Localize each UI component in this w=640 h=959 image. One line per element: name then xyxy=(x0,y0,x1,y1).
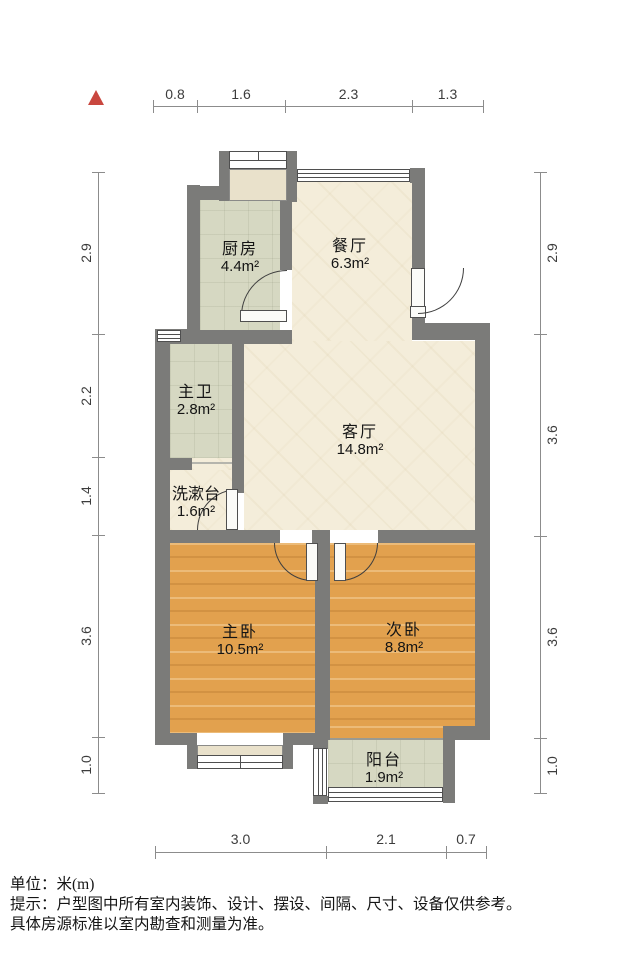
dim-tick xyxy=(534,334,547,335)
room-name: 阳台 xyxy=(365,752,403,769)
kitchen-bay-sill xyxy=(229,169,287,201)
dim-line-right xyxy=(540,172,541,793)
dim-label: 2.3 xyxy=(285,86,412,102)
dim-label: 1.3 xyxy=(412,86,483,102)
dim-tick xyxy=(534,172,547,173)
wall-bay2-right-stub xyxy=(283,745,293,769)
dim-label: 0.7 xyxy=(446,831,486,847)
wall-balcony-right xyxy=(443,740,455,803)
dim-label: 2.2 xyxy=(78,376,94,416)
dim-tick xyxy=(92,793,105,794)
disclaimer-line2: 具体房源标准以室内勘查和测量为准。 xyxy=(10,915,630,935)
room-label-master-bedroom: 主卧 10.5m² xyxy=(217,624,264,659)
room-label-washstand: 洗漱台 1.6m² xyxy=(172,486,220,521)
wall-bay2-left-stub xyxy=(187,745,197,769)
dim-label: 0.8 xyxy=(153,86,197,102)
kitchen-bay-window xyxy=(229,151,287,169)
kitchen-door-leaf xyxy=(240,310,287,322)
wall-kitchen-left xyxy=(187,185,200,332)
dim-label: 1.4 xyxy=(78,476,94,516)
dim-line-top xyxy=(153,106,483,107)
room-area: 1.6m² xyxy=(172,503,220,521)
footer-notes: 单位：米(m) 提示：户型图中所有室内装饰、设计、摆设、间隔、尺寸、设备仅供参考… xyxy=(10,875,630,935)
wall-kitchen-bottom xyxy=(170,330,292,344)
room-area: 2.8m² xyxy=(177,401,215,419)
master-bedroom-door-leaf xyxy=(306,543,318,581)
wall-left-main xyxy=(155,343,170,745)
room-label-dining: 餐厅 6.3m² xyxy=(331,238,369,273)
floor-plan: 厨房 4.4m² 餐厅 6.3m² 主卫 2.8m² 客厅 14.8m² 洗漱台… xyxy=(0,0,640,959)
entry-door-arc xyxy=(418,268,464,314)
disclaimer-line1: 提示：户型图中所有室内装饰、设计、摆设、间隔、尺寸、设备仅供参考。 xyxy=(10,895,630,915)
room-name: 洗漱台 xyxy=(172,486,220,503)
room-label-master-bath: 主卫 2.8m² xyxy=(177,384,215,419)
dining-window xyxy=(297,169,410,182)
bath-opening-line xyxy=(192,462,232,464)
dim-line-bottom xyxy=(155,852,486,853)
room-name: 厨房 xyxy=(221,241,259,258)
balcony-threshold-line xyxy=(330,738,443,740)
unit-note: 单位：米(m) xyxy=(10,875,630,895)
dim-tick xyxy=(486,846,487,859)
room-name: 次卧 xyxy=(385,622,423,639)
wall-right-upper xyxy=(412,168,425,269)
dim-tick xyxy=(534,536,547,537)
dim-tick xyxy=(92,334,105,335)
north-indicator-icon xyxy=(88,90,104,105)
room-name: 客厅 xyxy=(337,424,384,441)
wall-right-step xyxy=(412,323,490,340)
room-label-living: 客厅 14.8m² xyxy=(337,424,384,459)
room-area: 4.4m² xyxy=(221,258,259,276)
dim-label: 2.9 xyxy=(78,233,94,273)
balcony-bottom-window xyxy=(328,787,443,802)
room-area: 10.5m² xyxy=(217,641,264,659)
dim-label: 2.9 xyxy=(544,233,560,273)
dim-tick xyxy=(446,846,447,859)
wall-bedrooms-top-center xyxy=(312,530,330,543)
room-label-kitchen: 厨房 4.4m² xyxy=(221,241,259,276)
dim-label: 3.6 xyxy=(544,415,560,455)
room-name: 主卧 xyxy=(217,624,264,641)
bath-passage-floor xyxy=(192,458,232,470)
dim-tick xyxy=(92,737,105,738)
balcony-left-window xyxy=(313,748,327,796)
dim-tick xyxy=(92,457,105,458)
master-bay-window xyxy=(197,755,283,769)
room-area: 14.8m² xyxy=(337,441,384,459)
dim-label: 2.1 xyxy=(326,831,446,847)
wall-right-main xyxy=(475,340,490,740)
room-name: 主卫 xyxy=(177,384,215,401)
second-bedroom-door-leaf xyxy=(334,543,346,581)
bath-small-window xyxy=(157,330,181,342)
dim-label: 3.0 xyxy=(155,831,326,847)
washstand-door-leaf xyxy=(226,489,238,530)
dim-tick xyxy=(534,793,547,794)
wall-bath-divider xyxy=(170,458,192,470)
dim-label: 3.6 xyxy=(78,616,94,656)
room-area: 1.9m² xyxy=(365,769,403,787)
dim-label: 1.0 xyxy=(78,745,94,785)
dim-tick xyxy=(326,846,327,859)
room-label-balcony: 阳台 1.9m² xyxy=(365,752,403,787)
dim-tick xyxy=(92,535,105,536)
dim-tick xyxy=(155,846,156,859)
wall-balcony-left-bottom-stub xyxy=(313,796,328,804)
wall-bedrooms-top-left xyxy=(155,530,280,543)
room-name: 餐厅 xyxy=(331,238,369,255)
dim-tick xyxy=(483,100,484,113)
wall-bedrooms-top-right xyxy=(378,530,475,543)
dim-label: 1.6 xyxy=(197,86,285,102)
wall-master-bottom-right xyxy=(283,733,315,745)
wall-master-bottom-left xyxy=(155,733,197,745)
room-area: 8.8m² xyxy=(385,639,423,657)
dim-line-left xyxy=(98,172,99,793)
dim-label: 1.0 xyxy=(544,746,560,786)
dim-tick xyxy=(534,738,547,739)
dim-tick xyxy=(92,172,105,173)
dim-label: 3.6 xyxy=(544,617,560,657)
wall-mid-vertical xyxy=(232,344,244,493)
room-label-second-bedroom: 次卧 8.8m² xyxy=(385,622,423,657)
wall-second-bottom-corner xyxy=(443,726,490,740)
room-area: 6.3m² xyxy=(331,255,369,273)
